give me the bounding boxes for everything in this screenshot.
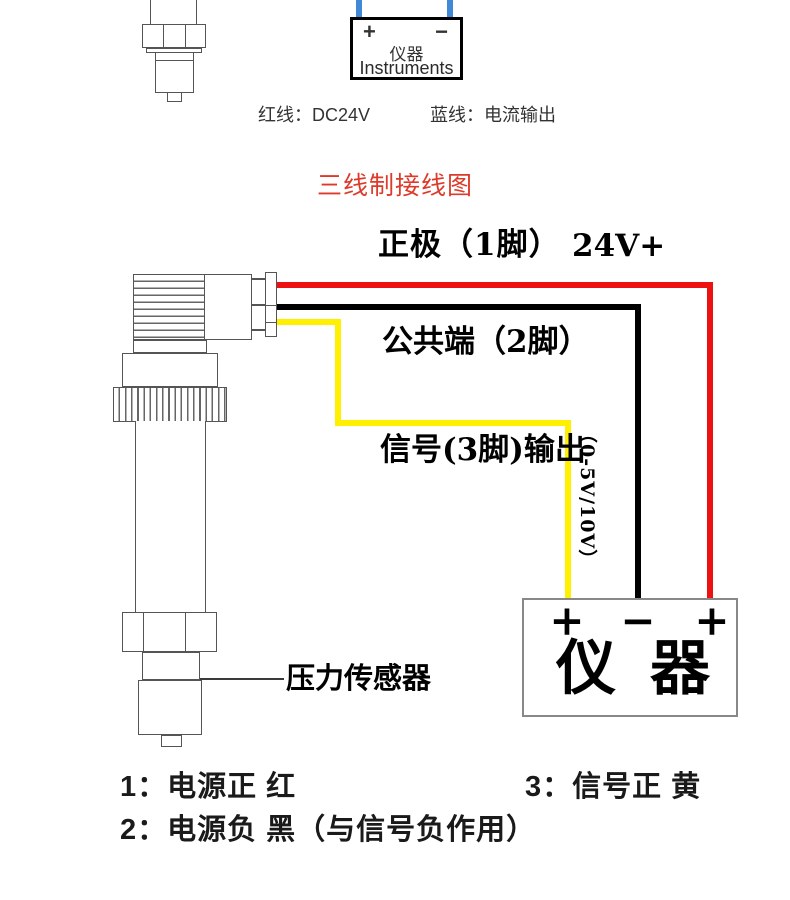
label-24v-plus: 24V+ [572, 230, 665, 263]
diagram-title: 三线制接线图 [0, 166, 790, 202]
divider [185, 613, 186, 651]
connector-side-housing [204, 274, 252, 340]
black-wire-vertical [635, 304, 641, 598]
top-instrument-box: + − 仪器 Instruments [350, 17, 463, 80]
caption-blue-wire: 蓝线：电流输出 [430, 101, 556, 127]
bottom-box-label: 仪器 [522, 638, 738, 701]
caption-red-wire: 红线：DC24V [258, 101, 370, 127]
sensor-label: 压力传感器 [286, 663, 431, 693]
blue-wire-left [356, 0, 362, 18]
label-signal-range: （0-5V/10V） [576, 424, 596, 569]
black-wire-horizontal [277, 304, 641, 310]
top-sensor-port-stub [167, 92, 182, 102]
label-signal-pin3: 信号(3脚)输出 [380, 434, 586, 467]
label-common-pin2: 公共端（2脚） [382, 326, 590, 359]
red-wire-vertical [707, 282, 713, 598]
terminal-bar [265, 272, 277, 337]
yellow-wire-vertical-1 [335, 319, 341, 426]
sensor-lower-body [138, 680, 202, 735]
knurled-nut [113, 387, 227, 422]
red-wire-horizontal [277, 282, 713, 288]
note-signal-positive: 3：信号正 黄 [525, 763, 701, 805]
label-positive-pin1: 正极（1脚） [378, 229, 561, 262]
top-box-label-en: Instruments [353, 58, 460, 79]
yellow-wire-horizontal-2 [335, 420, 571, 426]
blue-wire-right [447, 0, 453, 18]
sensor-cylinder [135, 421, 206, 612]
sensor-port-stub [161, 735, 182, 747]
note-power-negative: 2：电源负 黑（与信号负作用） [120, 806, 536, 848]
divider [266, 305, 276, 306]
divider [185, 25, 186, 47]
terminal-tick-1 [252, 278, 265, 280]
sensor-lower-neck [142, 652, 200, 680]
top-sensor-cylinder [150, 0, 197, 24]
note-power-positive: 1：电源正 红 [120, 763, 296, 805]
sensor-hex-nut [122, 612, 217, 652]
divider [163, 25, 164, 47]
terminal-tick-2 [252, 304, 265, 306]
top-sensor-hex-nut [142, 24, 206, 48]
sensor-leader-line [200, 678, 284, 680]
yellow-wire-horizontal-1 [277, 319, 341, 325]
sensor-flange [122, 353, 218, 387]
divider [143, 613, 144, 651]
wiring-diagram-page: + − 仪器 Instruments 红线：DC24V 蓝线：电流输出 三线制接… [0, 0, 790, 900]
top-sensor-body [155, 60, 194, 93]
terminal-tick-3 [252, 329, 265, 331]
divider [266, 322, 276, 323]
connector-neck [133, 340, 207, 353]
connector-ribbed-body [133, 274, 205, 340]
